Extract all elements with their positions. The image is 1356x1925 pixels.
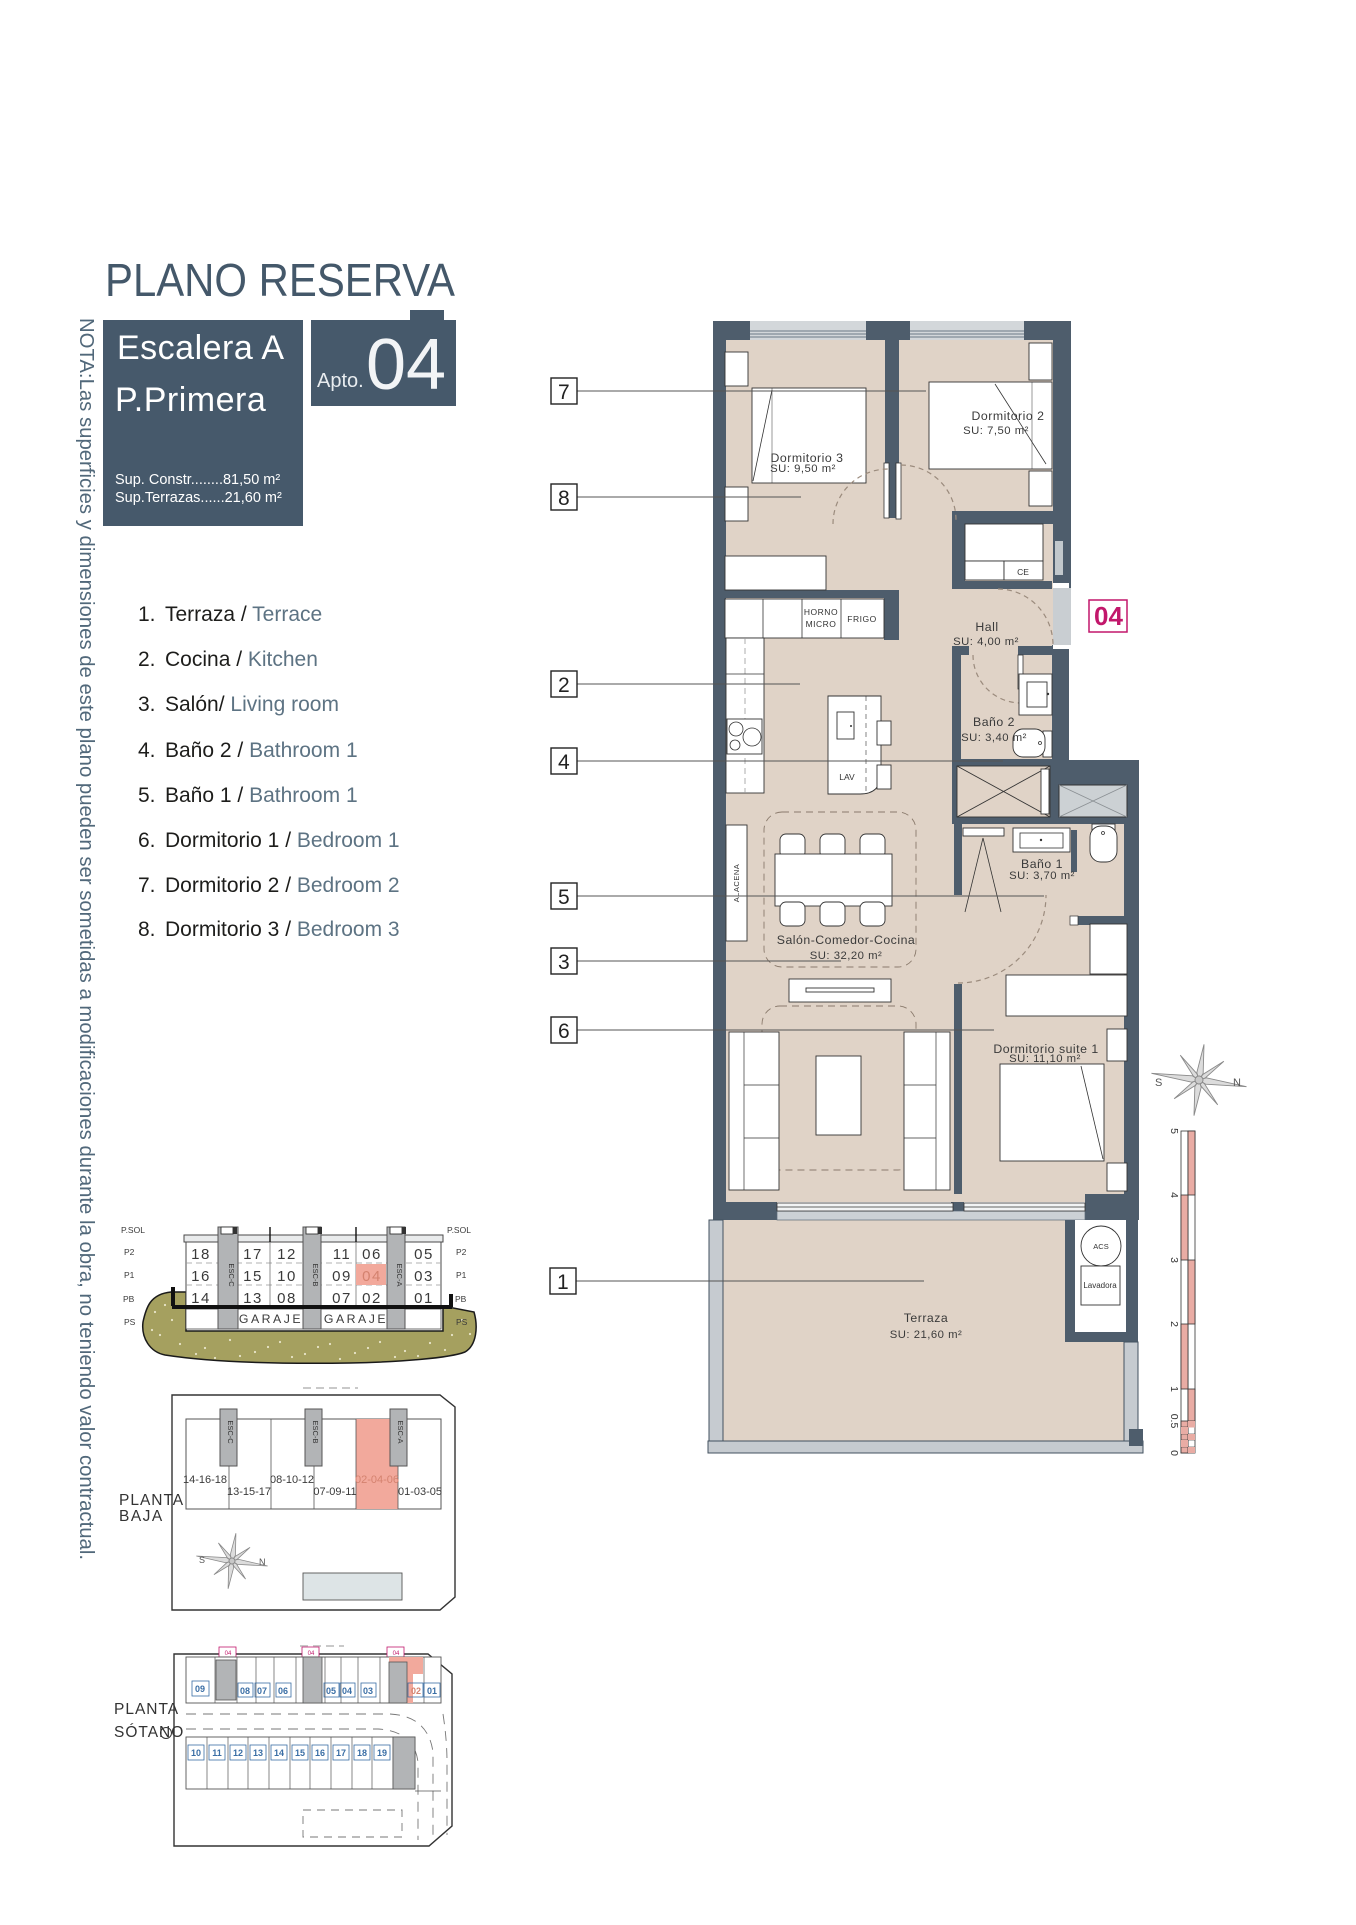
svg-text:0.5: 0.5 bbox=[1168, 1414, 1180, 1429]
svg-text:3.: 3. bbox=[138, 693, 156, 716]
svg-text:SU: 32,20 m²: SU: 32,20 m² bbox=[810, 950, 883, 962]
svg-text:PS: PS bbox=[456, 1317, 468, 1327]
svg-text:18: 18 bbox=[357, 1748, 367, 1758]
svg-text:HORNO: HORNO bbox=[804, 607, 838, 617]
svg-text:7: 7 bbox=[558, 381, 570, 404]
svg-text:03: 03 bbox=[363, 1686, 373, 1696]
svg-text:Salón/ Living room: Salón/ Living room bbox=[165, 693, 339, 716]
svg-text:Baño 1 / Bathroom 1: Baño 1 / Bathroom 1 bbox=[165, 784, 358, 807]
svg-text:01: 01 bbox=[414, 1290, 434, 1307]
svg-text:18: 18 bbox=[191, 1246, 211, 1263]
svg-text:10: 10 bbox=[191, 1748, 201, 1758]
svg-text:11: 11 bbox=[333, 1246, 352, 1263]
svg-text:05: 05 bbox=[326, 1686, 336, 1696]
svg-text:PLANO RESERVA: PLANO RESERVA bbox=[105, 254, 455, 306]
svg-text:Apto.: Apto. bbox=[317, 370, 364, 392]
svg-text:SU: 9,50 m²: SU: 9,50 m² bbox=[770, 463, 836, 475]
svg-text:ESC-B: ESC-B bbox=[311, 1264, 320, 1287]
svg-text:P.SOL: P.SOL bbox=[121, 1225, 145, 1235]
svg-text:02-04-06: 02-04-06 bbox=[355, 1474, 399, 1486]
svg-text:ESC-C: ESC-C bbox=[227, 1263, 236, 1287]
svg-text:P.Primera: P.Primera bbox=[115, 381, 266, 419]
svg-text:P2: P2 bbox=[456, 1247, 467, 1257]
svg-text:19: 19 bbox=[377, 1748, 387, 1758]
svg-text:16: 16 bbox=[191, 1268, 211, 1285]
svg-text:05: 05 bbox=[414, 1246, 434, 1263]
svg-text:Dormitorio 2 / Bedroom 2: Dormitorio 2 / Bedroom 2 bbox=[165, 874, 400, 897]
svg-text:5: 5 bbox=[558, 886, 570, 909]
svg-text:Hall: Hall bbox=[975, 620, 998, 634]
svg-text:P2: P2 bbox=[124, 1247, 135, 1257]
svg-text:NOTA:Las superficies y dimensi: NOTA:Las superficies y dimensiones de es… bbox=[75, 318, 97, 1560]
svg-text:SU: 3,40 m²: SU: 3,40 m² bbox=[961, 732, 1027, 744]
svg-text:0: 0 bbox=[1168, 1450, 1180, 1456]
svg-text:12: 12 bbox=[233, 1748, 243, 1758]
svg-text:09: 09 bbox=[195, 1684, 205, 1694]
svg-text:BAJA: BAJA bbox=[119, 1508, 164, 1525]
svg-text:4: 4 bbox=[558, 751, 570, 774]
svg-text:14: 14 bbox=[191, 1290, 211, 1307]
svg-text:13: 13 bbox=[243, 1290, 263, 1307]
svg-text:02: 02 bbox=[411, 1686, 421, 1696]
svg-text:Terraza: Terraza bbox=[904, 1311, 949, 1325]
svg-text:8: 8 bbox=[558, 487, 570, 510]
svg-text:P.SOL: P.SOL bbox=[447, 1225, 471, 1235]
svg-text:04: 04 bbox=[342, 1686, 352, 1696]
svg-text:4.: 4. bbox=[138, 739, 156, 762]
svg-text:SU: 4,00 m²: SU: 4,00 m² bbox=[953, 636, 1019, 648]
svg-text:6.: 6. bbox=[138, 829, 156, 852]
svg-text:PLANTA: PLANTA bbox=[114, 1701, 179, 1718]
svg-text:04: 04 bbox=[393, 1651, 400, 1657]
svg-text:01: 01 bbox=[427, 1686, 437, 1696]
svg-text:1.: 1. bbox=[138, 603, 156, 626]
svg-text:08: 08 bbox=[240, 1686, 250, 1696]
svg-text:04: 04 bbox=[1094, 601, 1123, 631]
svg-text:S: S bbox=[199, 1555, 205, 1565]
svg-text:Cocina / Kitchen: Cocina / Kitchen bbox=[165, 648, 318, 671]
svg-text:17: 17 bbox=[243, 1246, 263, 1263]
svg-text:SÓTANO: SÓTANO bbox=[114, 1724, 184, 1741]
svg-text:14: 14 bbox=[274, 1748, 284, 1758]
svg-text:02: 02 bbox=[362, 1290, 382, 1307]
svg-text:Dormitorio 3 / Bedroom 3: Dormitorio 3 / Bedroom 3 bbox=[165, 918, 400, 941]
svg-text:LAV: LAV bbox=[839, 772, 855, 782]
svg-text:04: 04 bbox=[308, 1651, 315, 1657]
svg-text:10: 10 bbox=[277, 1268, 297, 1285]
svg-text:07: 07 bbox=[257, 1686, 267, 1696]
svg-text:Sup.Terrazas......21,60 m²: Sup.Terrazas......21,60 m² bbox=[115, 490, 282, 506]
svg-text:5.: 5. bbox=[138, 784, 156, 807]
svg-text:S: S bbox=[1155, 1077, 1162, 1089]
svg-text:15: 15 bbox=[243, 1268, 263, 1285]
svg-text:PS: PS bbox=[124, 1317, 136, 1327]
svg-text:13-15-17: 13-15-17 bbox=[227, 1486, 271, 1498]
svg-text:Terraza / Terrace: Terraza / Terrace bbox=[165, 603, 322, 626]
svg-text:4: 4 bbox=[1168, 1192, 1180, 1198]
svg-text:09: 09 bbox=[332, 1268, 352, 1285]
svg-text:04: 04 bbox=[366, 325, 446, 405]
svg-text:P1: P1 bbox=[456, 1270, 467, 1280]
svg-text:PB: PB bbox=[123, 1294, 135, 1304]
svg-text:3: 3 bbox=[1168, 1257, 1180, 1263]
svg-text:Escalera A: Escalera A bbox=[117, 329, 285, 367]
svg-text:1: 1 bbox=[557, 1271, 569, 1294]
svg-text:16: 16 bbox=[315, 1748, 325, 1758]
svg-text:15: 15 bbox=[295, 1748, 305, 1758]
svg-text:Baño 2: Baño 2 bbox=[973, 715, 1015, 729]
svg-text:5: 5 bbox=[1168, 1128, 1180, 1134]
svg-text:CE: CE bbox=[1017, 567, 1029, 577]
svg-text:Baño 2 / Bathroom 1: Baño 2 / Bathroom 1 bbox=[165, 739, 358, 762]
svg-text:Sup. Constr........81,50 m²: Sup. Constr........81,50 m² bbox=[115, 472, 280, 488]
svg-text:FRIGO: FRIGO bbox=[847, 614, 876, 624]
svg-text:Baño 1: Baño 1 bbox=[1021, 857, 1063, 871]
svg-text:ESC-A: ESC-A bbox=[395, 1264, 404, 1287]
svg-text:17: 17 bbox=[336, 1748, 346, 1758]
svg-text:ACS: ACS bbox=[1093, 1242, 1108, 1251]
svg-text:11: 11 bbox=[212, 1748, 222, 1758]
svg-text:SU: 7,50 m²: SU: 7,50 m² bbox=[963, 425, 1029, 437]
svg-text:2.: 2. bbox=[138, 648, 156, 671]
svg-text:SU: 3,70 m²: SU: 3,70 m² bbox=[1009, 870, 1075, 882]
svg-text:1: 1 bbox=[1168, 1386, 1180, 1392]
svg-text:GARAJE: GARAJE bbox=[239, 1312, 303, 1326]
svg-text:04: 04 bbox=[225, 1651, 232, 1657]
svg-text:SU: 11,10 m²: SU: 11,10 m² bbox=[1009, 1053, 1081, 1065]
svg-text:2: 2 bbox=[558, 674, 570, 697]
svg-text:ESC-C: ESC-C bbox=[226, 1420, 235, 1444]
svg-text:N: N bbox=[259, 1557, 266, 1567]
svg-text:13: 13 bbox=[253, 1748, 263, 1758]
svg-text:6: 6 bbox=[558, 1020, 570, 1043]
svg-text:06: 06 bbox=[278, 1686, 288, 1696]
svg-text:07-09-11: 07-09-11 bbox=[313, 1486, 356, 1498]
svg-text:7.: 7. bbox=[138, 874, 156, 897]
svg-text:SU: 21,60 m²: SU: 21,60 m² bbox=[890, 1329, 963, 1341]
svg-text:Dormitorio 2: Dormitorio 2 bbox=[972, 409, 1045, 423]
svg-text:PLANTA: PLANTA bbox=[119, 1492, 184, 1509]
svg-text:ESC-B: ESC-B bbox=[311, 1421, 320, 1444]
svg-text:P1: P1 bbox=[124, 1270, 135, 1280]
svg-text:Dormitorio 1 / Bedroom 1: Dormitorio 1 / Bedroom 1 bbox=[165, 829, 400, 852]
svg-text:Lavadora: Lavadora bbox=[1083, 1281, 1117, 1290]
svg-text:MICRO: MICRO bbox=[806, 619, 837, 629]
svg-text:ESC-A: ESC-A bbox=[396, 1421, 405, 1444]
svg-text:08-10-12: 08-10-12 bbox=[270, 1474, 314, 1486]
svg-text:06: 06 bbox=[362, 1246, 382, 1263]
svg-text:3: 3 bbox=[558, 951, 570, 974]
svg-text:04: 04 bbox=[362, 1268, 382, 1285]
svg-text:08: 08 bbox=[277, 1290, 297, 1307]
svg-text:03: 03 bbox=[414, 1268, 434, 1285]
svg-text:GARAJE: GARAJE bbox=[324, 1312, 388, 1326]
svg-text:14-16-18: 14-16-18 bbox=[183, 1474, 227, 1486]
svg-text:12: 12 bbox=[277, 1246, 297, 1263]
svg-text:01-03-05: 01-03-05 bbox=[398, 1486, 442, 1498]
svg-text:Salón-Comedor-Cocina: Salón-Comedor-Cocina bbox=[777, 933, 916, 947]
svg-text:2: 2 bbox=[1168, 1321, 1180, 1327]
svg-text:N: N bbox=[1233, 1077, 1241, 1089]
svg-text:07: 07 bbox=[332, 1290, 352, 1307]
svg-text:8.: 8. bbox=[138, 918, 156, 941]
svg-text:PB: PB bbox=[455, 1294, 467, 1304]
